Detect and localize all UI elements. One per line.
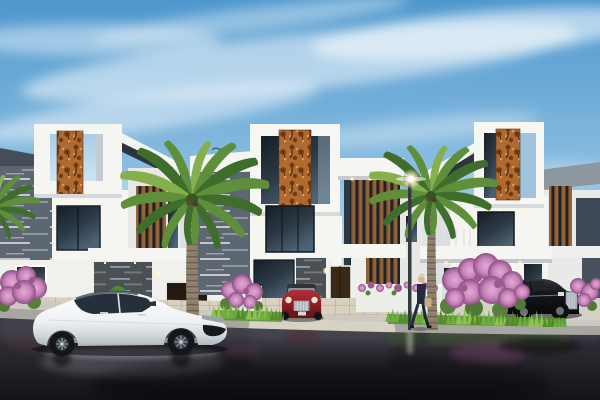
center-cube <box>250 124 340 216</box>
scene-canvas <box>0 0 600 400</box>
left-villa-cube <box>34 124 122 198</box>
right-window <box>478 212 514 250</box>
architectural-render <box>0 0 600 400</box>
rear-wheel <box>50 332 75 357</box>
bag <box>425 298 432 307</box>
wood-screen-far-right <box>549 186 572 246</box>
left-villa-window <box>57 206 100 250</box>
rust-panel-left <box>57 131 83 197</box>
balcony-slab <box>336 244 406 258</box>
slate-panel-1 <box>576 198 600 248</box>
rust-panel-right <box>496 129 520 200</box>
rust-panel-center <box>279 130 311 206</box>
front-wheel <box>168 329 195 356</box>
left-villa-downlights <box>55 198 89 204</box>
